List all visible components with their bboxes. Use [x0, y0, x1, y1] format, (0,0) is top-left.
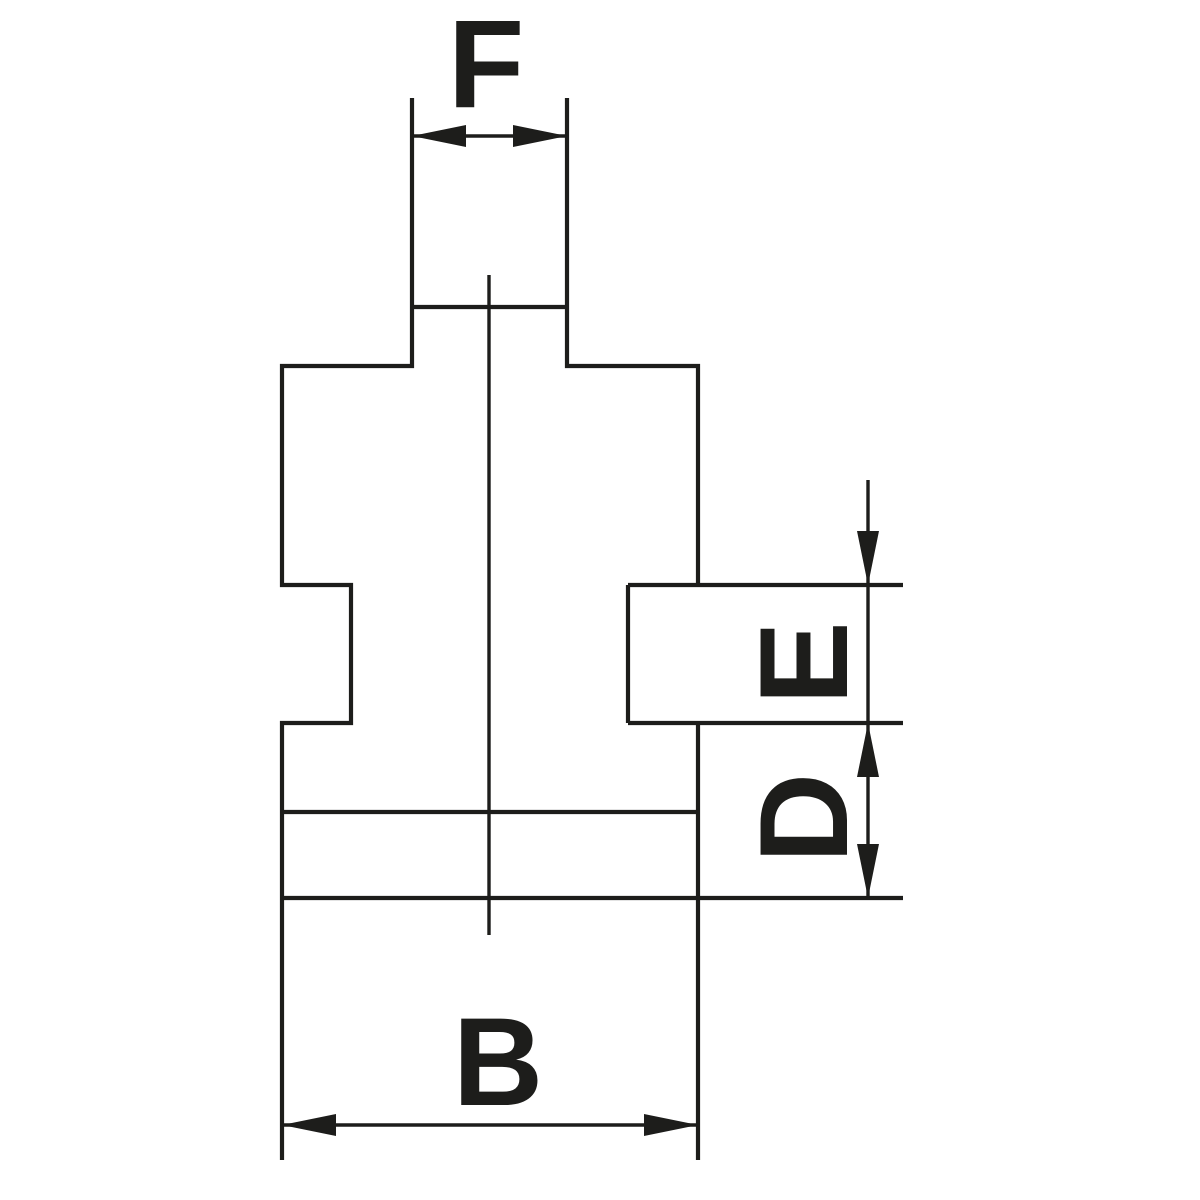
- drawing-canvas: F E D B: [0, 0, 1200, 1200]
- dimension-d: D: [735, 723, 879, 898]
- outline-left-profile: [282, 98, 412, 1160]
- e-arrow-down-icon: [857, 531, 879, 585]
- dimension-label-d: D: [735, 773, 874, 863]
- dimension-f: F: [412, 0, 567, 147]
- b-arrow-right-icon: [644, 1114, 698, 1136]
- dimension-label-f: F: [448, 0, 524, 134]
- dimension-e: E: [735, 531, 879, 705]
- b-arrow-left-icon: [282, 1114, 336, 1136]
- dimension-b: B: [282, 993, 698, 1136]
- dimension-label-e: E: [735, 621, 874, 704]
- outline-right-upper-profile: [567, 98, 698, 585]
- jaw-cross-section-drawing: F E D B: [0, 0, 1200, 1200]
- d-arrow-up-icon: [857, 723, 879, 777]
- dimension-label-b: B: [453, 993, 543, 1132]
